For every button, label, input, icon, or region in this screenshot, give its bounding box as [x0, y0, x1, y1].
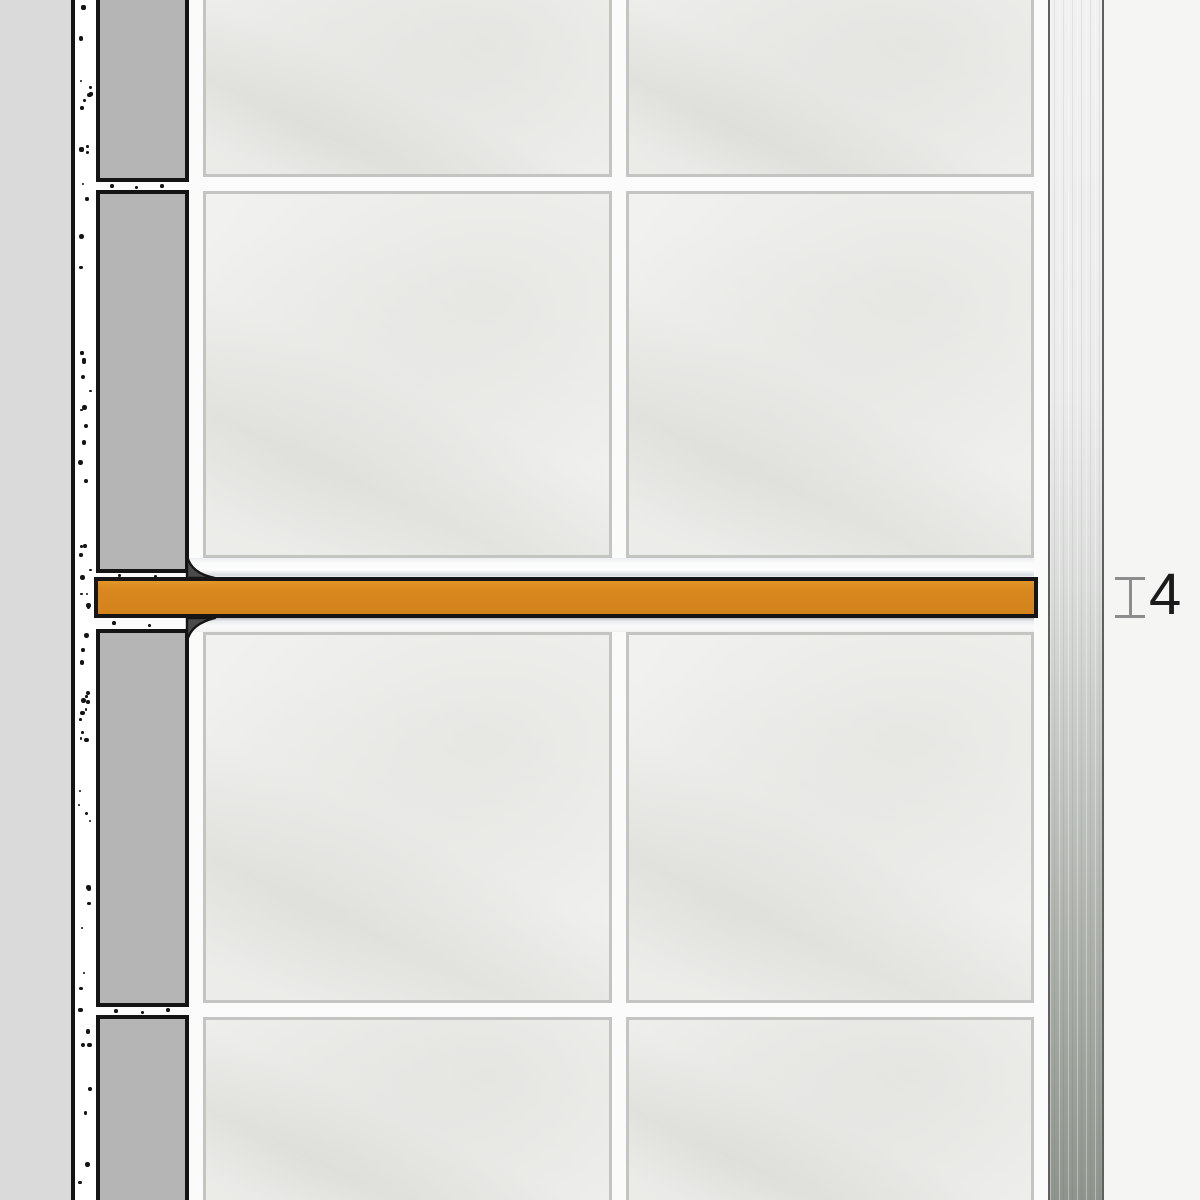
adhesive-mortar-layer [75, 0, 96, 1200]
stipple-dot [135, 186, 138, 189]
tile [626, 1017, 1034, 1200]
stipple-dot [86, 145, 89, 148]
stipple-dot [79, 987, 82, 990]
section-tile [96, 190, 189, 573]
stipple-dot [86, 700, 90, 704]
stipple-dot [141, 1011, 144, 1014]
stipple-dot [80, 409, 83, 412]
stipple-dot [79, 266, 82, 269]
stipple-dot [80, 593, 83, 596]
metal-edge-profile [1048, 0, 1104, 1200]
stipple-dot [80, 737, 83, 740]
stipple-dot [81, 5, 85, 9]
stipple-dot [82, 405, 87, 410]
stipple-dot [85, 695, 88, 698]
tile [626, 632, 1034, 1003]
stipple-dot [79, 553, 83, 557]
stipple-dot [87, 886, 92, 891]
profile-upper-flange [189, 558, 1034, 577]
stipple-dot [89, 569, 91, 571]
stipple-dot [160, 184, 164, 188]
stipple-dot [88, 1087, 92, 1091]
stipple-dot [80, 575, 85, 580]
section-tile [96, 629, 189, 1007]
stipple-dot [84, 633, 89, 638]
stipple-dot [85, 197, 89, 201]
profile-lower-flange [189, 618, 1034, 632]
stipple-dot [112, 621, 116, 625]
stipple-dot [89, 92, 92, 95]
section-tile [96, 1015, 189, 1200]
installation-diagram: 4 [0, 0, 1200, 1200]
stipple-dot [79, 234, 84, 239]
stipple-dot [81, 1043, 86, 1048]
stipple-dot [78, 1008, 82, 1012]
stipple-dot [78, 460, 83, 465]
stipple-dot [80, 80, 82, 82]
stipple-dot [81, 375, 86, 380]
stipple-dot [78, 1181, 81, 1184]
stipple-dot [84, 738, 89, 743]
tile [626, 0, 1034, 177]
stipple-dot [85, 812, 88, 815]
decor-profile-bar [94, 577, 1038, 618]
stipple-dot [79, 790, 81, 792]
stipple-dot [87, 902, 90, 905]
stipple-dot [83, 972, 85, 974]
stipple-dot [80, 106, 84, 110]
tile [626, 191, 1034, 558]
stipple-dot [114, 1009, 118, 1013]
stipple-dot [89, 390, 92, 393]
stipple-dot [84, 479, 88, 483]
dimension-extent-bar [1129, 580, 1132, 615]
stipple-dot [80, 660, 85, 665]
stipple-dot [81, 927, 83, 929]
stipple-dot [82, 183, 84, 185]
stipple-dot [84, 424, 89, 429]
stipple-dot [86, 1029, 90, 1033]
stipple-dot [110, 184, 114, 188]
dimension-label: 4 [1149, 564, 1197, 626]
stipple-dot [166, 1008, 170, 1012]
tile [203, 1017, 612, 1200]
stipple-dot [83, 544, 87, 548]
tile [203, 191, 612, 558]
stipple-dot [87, 1043, 91, 1047]
dimension-extent-icon [1115, 577, 1145, 618]
wall-substrate [0, 0, 71, 1200]
stipple-dot [80, 545, 83, 548]
stipple-dot [89, 86, 92, 89]
stipple-dot [82, 440, 86, 444]
stipple-dot [83, 99, 86, 102]
stipple-dot [78, 804, 80, 806]
stipple-dot [79, 147, 83, 151]
stipple-dot [84, 1111, 88, 1115]
stipple-dot [86, 603, 91, 608]
stipple-dot [79, 718, 82, 721]
sealant-fillet-upper [186, 555, 218, 579]
stipple-dot [81, 731, 84, 734]
stipple-dot [86, 151, 89, 154]
stipple-dot [148, 624, 151, 627]
section-tile [96, 0, 189, 182]
stipple-dot [86, 593, 88, 595]
stipple-dot [89, 820, 91, 822]
stipple-dot [80, 351, 84, 355]
tile [203, 0, 612, 177]
sealant-fillet-lower [186, 617, 218, 642]
stipple-dot [79, 36, 84, 41]
stipple-dot [85, 1162, 90, 1167]
stipple-dot [85, 708, 88, 711]
stipple-dot [81, 648, 85, 652]
tile [203, 632, 612, 1003]
stipple-dot [80, 711, 85, 716]
